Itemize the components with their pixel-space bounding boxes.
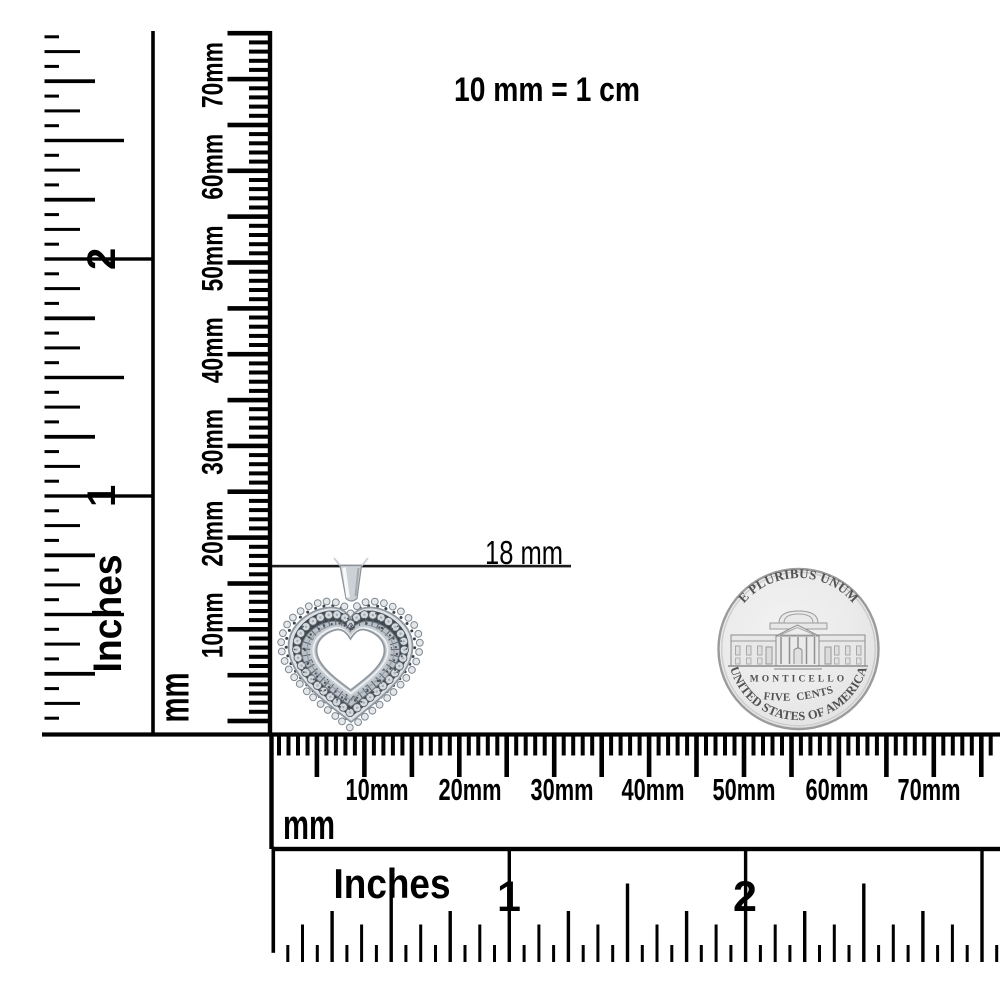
svg-text:60mm: 60mm (197, 134, 230, 200)
svg-text:mm: mm (283, 801, 335, 848)
svg-text:Inches: Inches (86, 555, 130, 673)
svg-text:2: 2 (80, 248, 124, 270)
svg-text:2: 2 (733, 873, 757, 921)
svg-text:30mm: 30mm (197, 409, 230, 475)
svg-text:20mm: 20mm (439, 772, 502, 807)
svg-text:1: 1 (80, 485, 124, 507)
svg-text:mm: mm (151, 673, 198, 723)
svg-text:40mm: 40mm (622, 772, 685, 807)
svg-text:70mm: 70mm (898, 772, 961, 807)
svg-text:30mm: 30mm (531, 772, 594, 807)
svg-text:10 mm = 1 cm: 10 mm = 1 cm (454, 71, 640, 109)
svg-text:10mm: 10mm (197, 592, 230, 658)
svg-text:60mm: 60mm (806, 772, 869, 807)
svg-text:40mm: 40mm (197, 317, 230, 383)
svg-text:50mm: 50mm (197, 226, 230, 292)
svg-text:Inches: Inches (334, 860, 451, 907)
svg-text:20mm: 20mm (197, 501, 230, 567)
svg-text:18 mm: 18 mm (485, 534, 563, 571)
svg-text:MONTICELLO: MONTICELLO (750, 675, 848, 685)
svg-text:1: 1 (497, 873, 521, 921)
svg-text:10mm: 10mm (346, 772, 409, 807)
svg-text:70mm: 70mm (197, 42, 230, 108)
svg-text:50mm: 50mm (713, 772, 776, 807)
